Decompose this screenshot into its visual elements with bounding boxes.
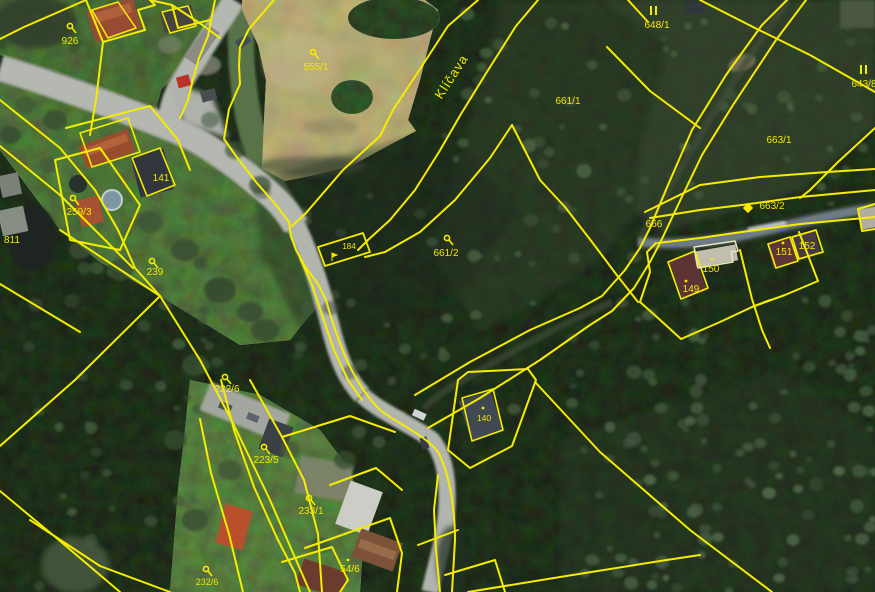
svg-text:661/1: 661/1 bbox=[555, 96, 580, 107]
svg-text:811: 811 bbox=[4, 235, 20, 246]
svg-text:184: 184 bbox=[342, 242, 356, 251]
svg-text:140: 140 bbox=[477, 413, 491, 423]
svg-text:150: 150 bbox=[703, 264, 720, 275]
svg-text:666: 666 bbox=[646, 219, 663, 230]
svg-text:661/2: 661/2 bbox=[433, 248, 458, 259]
svg-text:54/6: 54/6 bbox=[340, 564, 360, 575]
svg-text:259/3: 259/3 bbox=[66, 207, 91, 218]
svg-text:233/1: 233/1 bbox=[298, 506, 323, 517]
svg-text:152: 152 bbox=[799, 241, 816, 252]
svg-text:239: 239 bbox=[147, 267, 164, 278]
svg-text:555/1: 555/1 bbox=[303, 62, 328, 73]
svg-text:141: 141 bbox=[153, 173, 170, 184]
svg-text:232/6: 232/6 bbox=[196, 577, 219, 587]
svg-text:926: 926 bbox=[62, 36, 79, 47]
svg-text:151: 151 bbox=[776, 247, 793, 258]
svg-text:663/1: 663/1 bbox=[766, 135, 791, 146]
svg-text:222/6: 222/6 bbox=[214, 384, 239, 395]
svg-text:648/1: 648/1 bbox=[644, 20, 669, 31]
svg-text:663/2: 663/2 bbox=[759, 201, 784, 212]
svg-text:149: 149 bbox=[683, 284, 700, 295]
svg-text:223/5: 223/5 bbox=[253, 455, 278, 466]
svg-text:643/8: 643/8 bbox=[851, 79, 875, 90]
